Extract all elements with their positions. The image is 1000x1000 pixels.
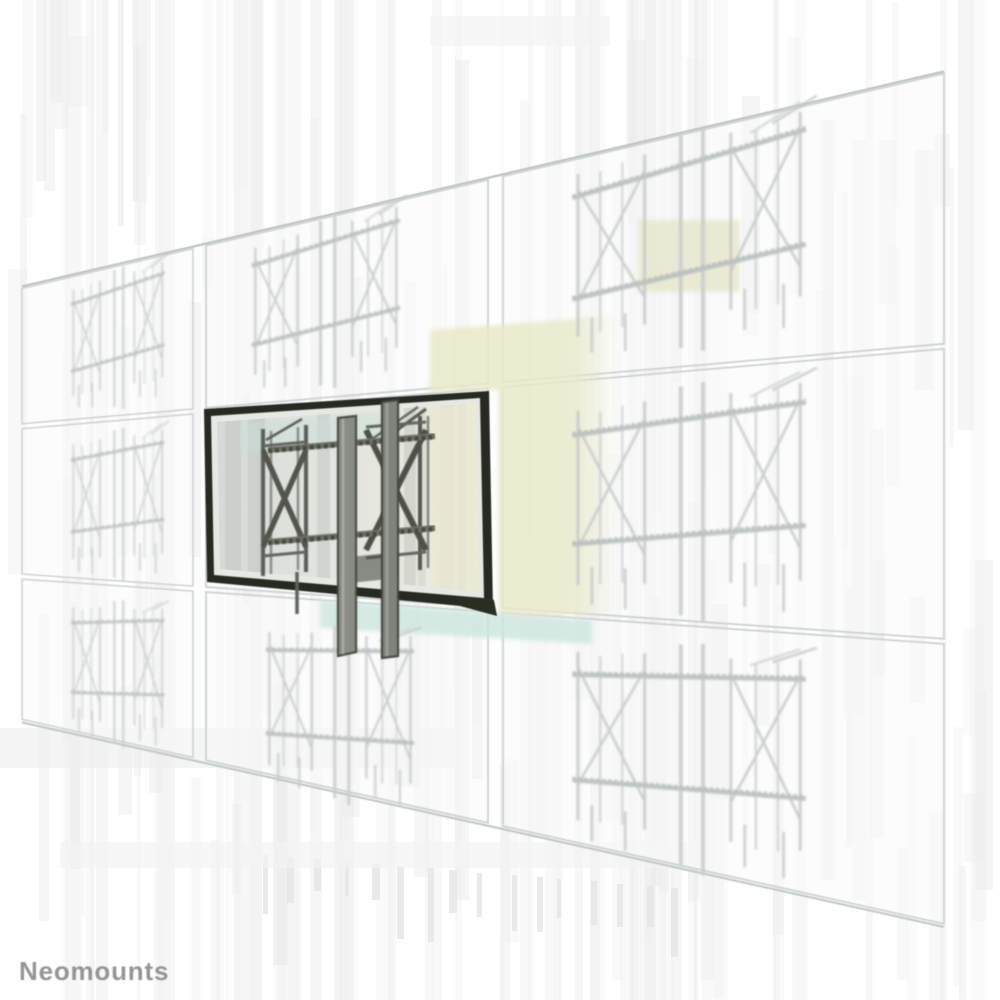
svg-text:Neomounts: Neomounts [19,956,169,986]
